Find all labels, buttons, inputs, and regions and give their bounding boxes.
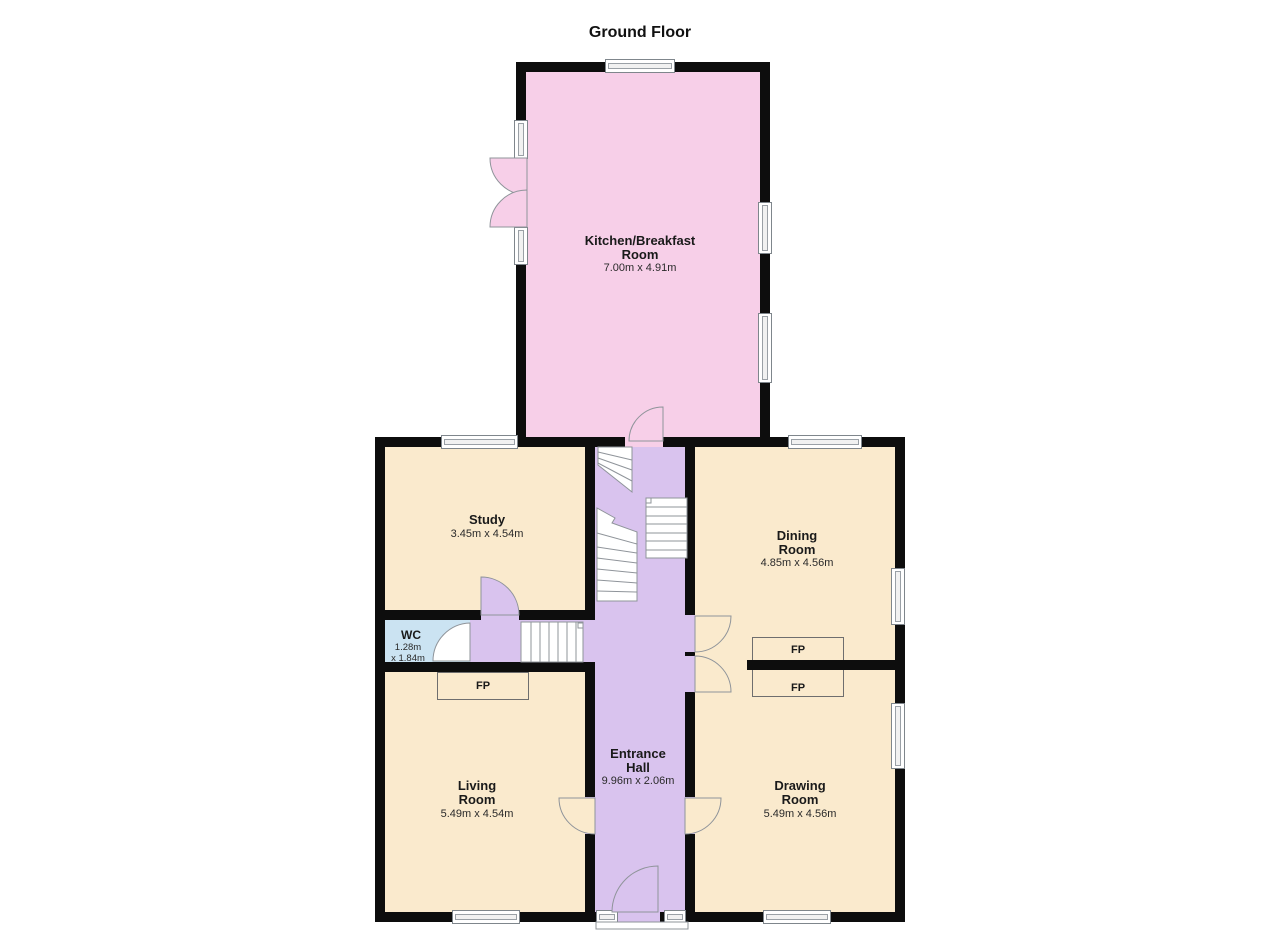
- kitchen-dims: 7.00m x 4.91m: [604, 261, 677, 275]
- window-symbol: [514, 227, 528, 265]
- door-opening: [481, 610, 519, 620]
- fireplace-drawing-label: FP: [791, 682, 805, 694]
- door-opening: [585, 620, 595, 662]
- fireplace-dining-label: FP: [791, 644, 805, 656]
- window-symbol: [514, 120, 528, 159]
- dining-name: Dining Room: [777, 529, 817, 557]
- window-symbol: [758, 313, 772, 383]
- window-symbol: [788, 435, 862, 449]
- window-symbol: [758, 202, 772, 254]
- living-dims: 5.49m x 4.54m: [441, 807, 514, 821]
- window-symbol: [605, 59, 675, 73]
- drawing-dims: 5.49m x 4.56m: [764, 807, 837, 821]
- floor-plan: FP FP FP: [0, 0, 1280, 931]
- kitchen-name: Kitchen/Breakfast Room: [585, 234, 696, 262]
- hall-name: Entrance Hall: [610, 747, 666, 775]
- fireplace-drawing: FP: [752, 669, 844, 697]
- wall-segment: [747, 660, 905, 670]
- door-opening: [625, 437, 663, 447]
- dining-drawing-opening: [695, 660, 747, 670]
- dining-dims: 4.85m x 4.56m: [761, 556, 834, 570]
- window-symbol: [891, 703, 905, 769]
- room-hall: [595, 447, 685, 912]
- fireplace-living: FP: [437, 672, 529, 700]
- door-opening: [585, 797, 595, 834]
- wc-dims: 1.28m x 1.84m: [391, 642, 425, 664]
- fireplace-living-label: FP: [476, 680, 490, 692]
- door-opening: [685, 656, 695, 692]
- hall-dims: 9.96m x 2.06m: [602, 774, 675, 788]
- study-name: Study: [469, 513, 505, 527]
- door-opening: [516, 158, 526, 227]
- door-opening: [685, 615, 695, 652]
- living-name: Living Room: [458, 779, 496, 807]
- window-symbol: [441, 435, 518, 449]
- window-symbol: [763, 910, 831, 924]
- study-dims: 3.45m x 4.54m: [451, 527, 524, 541]
- window-symbol: [452, 910, 520, 924]
- window-sidelight: [596, 910, 618, 924]
- door-opening: [685, 797, 695, 834]
- wc-name: WC: [401, 628, 421, 642]
- wall-segment: [585, 447, 595, 912]
- door-opening: [614, 912, 660, 922]
- window-sidelight: [664, 910, 686, 924]
- window-symbol: [891, 568, 905, 625]
- lobby-area: [470, 620, 585, 662]
- wall-segment: [375, 437, 385, 922]
- page-title: Ground Floor: [589, 24, 691, 42]
- wall-segment: [895, 437, 905, 922]
- drawing-name: Drawing Room: [774, 779, 825, 807]
